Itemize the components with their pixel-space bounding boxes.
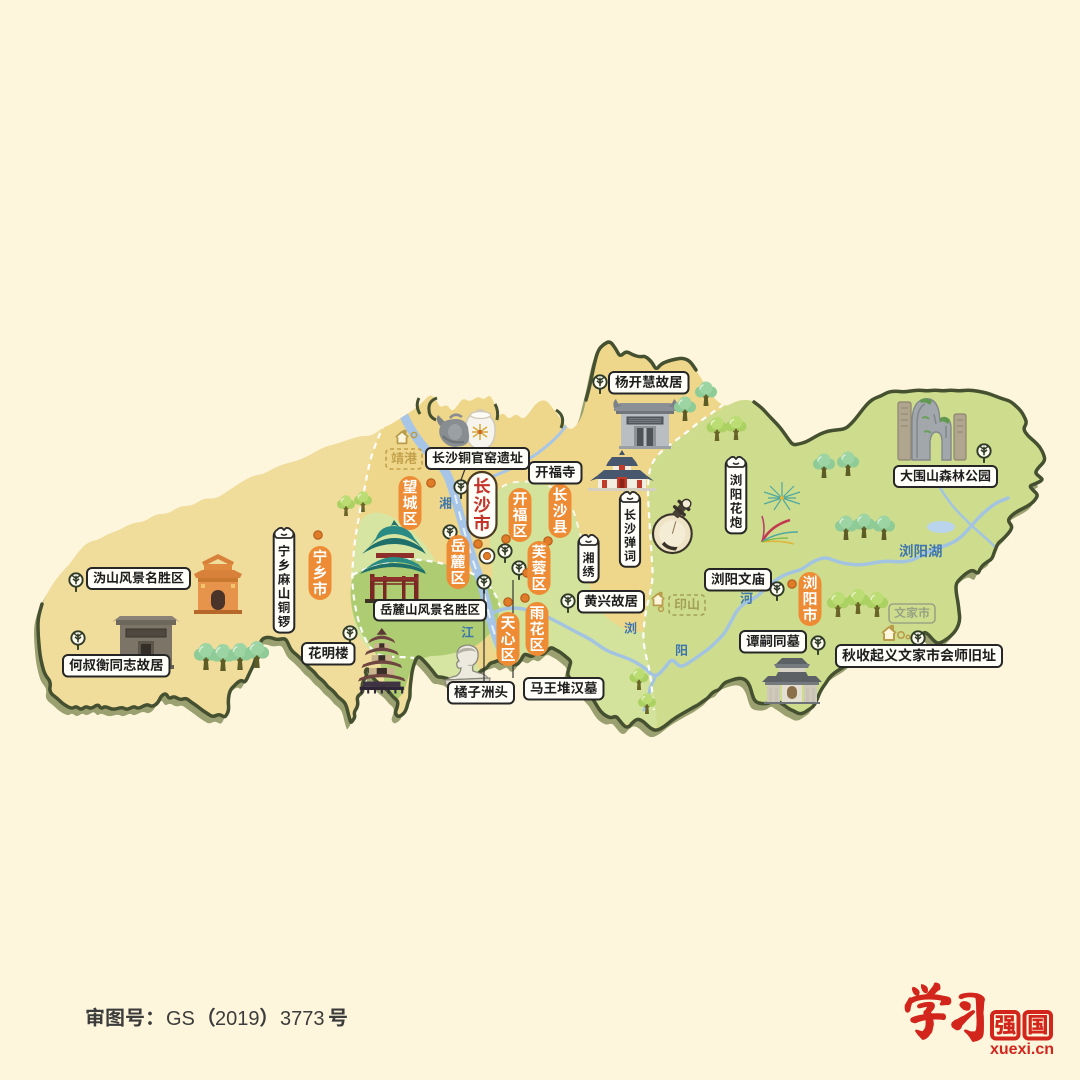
svg-text:3773: 3773 (280, 1008, 325, 1030)
svg-text:xuexi.cn: xuexi.cn (990, 1041, 1054, 1058)
svg-text:GS: GS (166, 1008, 195, 1030)
svg-text:2019: 2019 (215, 1008, 260, 1030)
